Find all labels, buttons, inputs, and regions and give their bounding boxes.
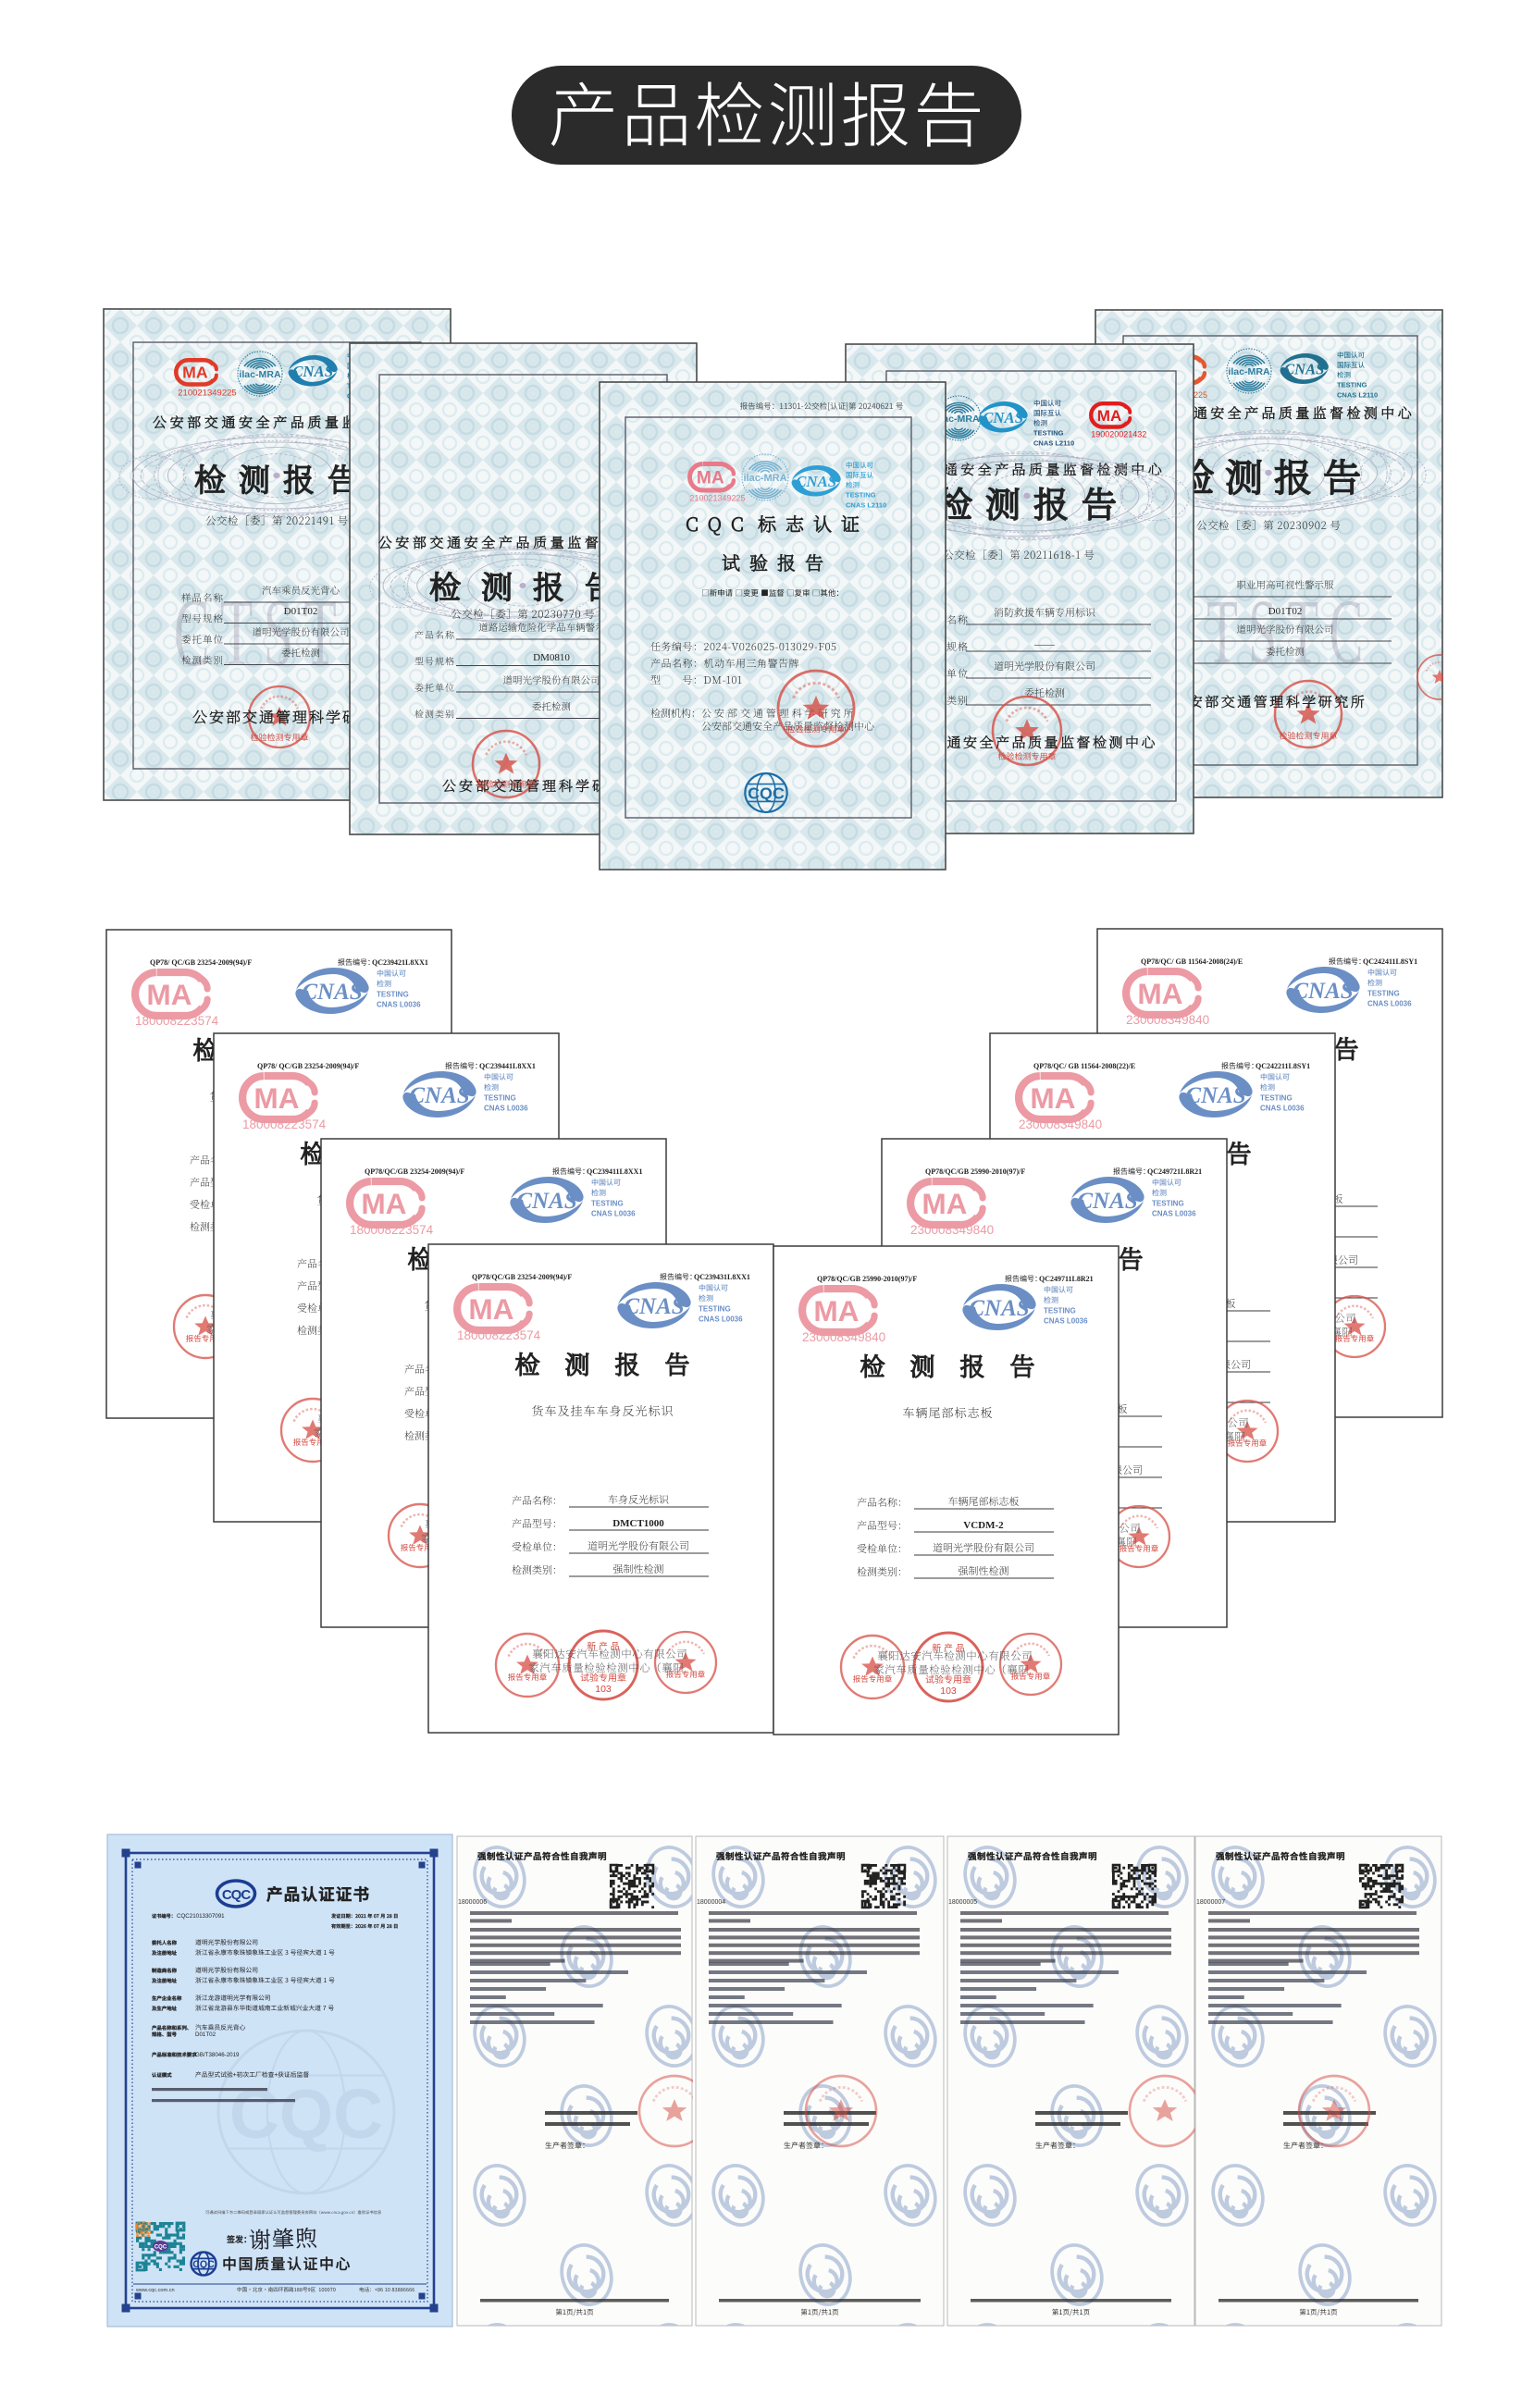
svg-text:MA: MA	[361, 1187, 406, 1220]
svg-text:CNAS: CNAS	[1293, 979, 1353, 1004]
svg-text:MA: MA	[697, 469, 724, 488]
svg-text:QP78/QC/ GB 11564-2008(24)/E: QP78/QC/ GB 11564-2008(24)/E	[1141, 957, 1243, 966]
svg-text:230008349840: 230008349840	[1019, 1118, 1102, 1131]
svg-text:D01T02: D01T02	[195, 2031, 216, 2038]
svg-text:www.cqc.com.cn: www.cqc.com.cn	[135, 2288, 175, 2293]
svg-text:103: 103	[940, 1686, 957, 1697]
svg-text:MA: MA	[468, 1292, 513, 1326]
svg-text:CNAS: CNAS	[302, 980, 362, 1005]
svg-text:QP78/QC/ GB 11564-2008(22)/E: QP78/QC/ GB 11564-2008(22)/E	[1033, 1062, 1135, 1070]
svg-text:ilac-MRA: ilac-MRA	[1228, 366, 1270, 377]
svg-text:QC249721L8R21: QC249721L8R21	[1147, 1167, 1202, 1176]
svg-text:CNAS L2110: CNAS L2110	[846, 500, 886, 509]
svg-text:210021349225: 210021349225	[689, 493, 745, 502]
svg-text:MA: MA	[922, 1187, 967, 1220]
svg-text:TESTING: TESTING	[1367, 989, 1400, 997]
svg-text:230008349840: 230008349840	[802, 1330, 885, 1344]
svg-text:QP78/ QC/GB 23254-2009(94)/F: QP78/ QC/GB 23254-2009(94)/F	[257, 1062, 359, 1070]
svg-text:CNAS: CNAS	[1185, 1083, 1245, 1108]
svg-text:CNAS L0036: CNAS L0036	[377, 1001, 421, 1009]
svg-text:18000006: 18000006	[458, 1899, 487, 1906]
svg-text:GB/T38046-2019: GB/T38046-2019	[195, 2052, 240, 2058]
svg-text:ilac-MRA: ilac-MRA	[239, 369, 281, 380]
svg-text:QP78/QC/GB 25990-2010(97)/F: QP78/QC/GB 25990-2010(97)/F	[817, 1275, 917, 1283]
svg-text:180008223574: 180008223574	[135, 1014, 219, 1028]
svg-text:QP78/QC/GB 23254-2009(94)/F: QP78/QC/GB 23254-2009(94)/F	[365, 1167, 464, 1176]
svg-text:CQC: CQC	[155, 2245, 167, 2251]
svg-text:QC249711L8R21: QC249711L8R21	[1039, 1275, 1094, 1283]
svg-text:TESTING: TESTING	[1044, 1306, 1076, 1315]
svg-text:MA: MA	[146, 978, 192, 1011]
svg-text:CNAS: CNAS	[409, 1083, 469, 1108]
svg-text:TESTING: TESTING	[1033, 429, 1064, 438]
svg-text:CQC21013307091: CQC21013307091	[177, 1913, 225, 1920]
svg-text:——: ——	[1033, 639, 1056, 650]
svg-text:ilac-MRA: ilac-MRA	[743, 473, 786, 484]
svg-text:18000005: 18000005	[948, 1899, 977, 1906]
svg-text:CNAS L2110: CNAS L2110	[1033, 438, 1074, 447]
svg-text:CNAS: CNAS	[624, 1294, 684, 1319]
svg-text:210021349225: 210021349225	[178, 388, 236, 398]
svg-text:CQC: CQC	[229, 2075, 383, 2153]
svg-text:180008223574: 180008223574	[350, 1223, 434, 1237]
svg-text:103: 103	[595, 1684, 612, 1695]
svg-text:QC239431L8XX1: QC239431L8XX1	[694, 1273, 750, 1281]
svg-text:QC239441L8XX1: QC239441L8XX1	[479, 1062, 536, 1070]
svg-text:CNAS: CNAS	[1077, 1189, 1137, 1214]
svg-text:DMCT1000: DMCT1000	[612, 1518, 664, 1529]
svg-text:CNAS L0036: CNAS L0036	[1367, 1000, 1412, 1008]
svg-text:TESTING: TESTING	[699, 1304, 731, 1313]
svg-text:180008223574: 180008223574	[242, 1118, 327, 1131]
svg-text:QC239411L8XX1: QC239411L8XX1	[587, 1167, 642, 1176]
svg-text:230008349840: 230008349840	[910, 1223, 994, 1237]
svg-text:CNAS L0036: CNAS L0036	[1260, 1105, 1305, 1113]
svg-text:CNAS: CNAS	[796, 473, 836, 490]
svg-text:CNAS: CNAS	[1284, 360, 1324, 377]
svg-text:CNAS L0036: CNAS L0036	[1152, 1210, 1196, 1218]
svg-text:QC242211L8SY1: QC242211L8SY1	[1256, 1062, 1310, 1070]
svg-text:QP78/QC/GB 25990-2010(97)/F: QP78/QC/GB 25990-2010(97)/F	[925, 1167, 1025, 1176]
svg-text:TESTING: TESTING	[1260, 1093, 1293, 1102]
svg-text:18000004: 18000004	[697, 1899, 725, 1906]
svg-text:TESTING: TESTING	[591, 1199, 624, 1207]
svg-text:CNAS L0036: CNAS L0036	[591, 1210, 636, 1218]
svg-text:CNAS L0036: CNAS L0036	[1044, 1317, 1088, 1326]
svg-text:D01T02: D01T02	[1268, 606, 1303, 617]
svg-text:CNAS L0036: CNAS L0036	[484, 1105, 528, 1113]
svg-text:MA: MA	[1097, 407, 1122, 425]
svg-text:CQC: CQC	[748, 784, 785, 803]
svg-text:CNAS L0036: CNAS L0036	[699, 1315, 743, 1324]
svg-text:CNAS: CNAS	[983, 409, 1023, 426]
svg-text:MA: MA	[813, 1294, 859, 1327]
svg-text:190020021432: 190020021432	[1091, 430, 1146, 439]
svg-text:DM0810: DM0810	[533, 652, 570, 663]
svg-text:CNAS L2110: CNAS L2110	[1337, 390, 1378, 399]
svg-text:QC239421L8XX1: QC239421L8XX1	[372, 958, 428, 967]
svg-text:CNAS: CNAS	[969, 1296, 1029, 1321]
svg-text:QP78/ QC/GB 23254-2009(94)/F: QP78/ QC/GB 23254-2009(94)/F	[150, 958, 252, 967]
svg-text:TESTING: TESTING	[484, 1093, 516, 1102]
svg-text:CNAS: CNAS	[292, 363, 333, 380]
svg-text:TESTING: TESTING	[846, 491, 876, 500]
svg-text:230008349840: 230008349840	[1126, 1013, 1209, 1027]
svg-text:MA: MA	[182, 364, 208, 382]
svg-text:VCDM-2: VCDM-2	[963, 1520, 1004, 1531]
svg-text:CNAS: CNAS	[516, 1189, 576, 1214]
svg-text:QC242411L8SY1: QC242411L8SY1	[1363, 957, 1417, 966]
svg-text:225: 225	[1194, 390, 1207, 400]
svg-text:TESTING: TESTING	[1337, 381, 1367, 389]
svg-text:TESTING: TESTING	[377, 990, 409, 998]
svg-text:CQC: CQC	[222, 1887, 252, 1903]
svg-text:18000007: 18000007	[1196, 1899, 1225, 1906]
svg-text:QP78/QC/GB 23254-2009(94)/F: QP78/QC/GB 23254-2009(94)/F	[472, 1273, 572, 1281]
svg-text:MA: MA	[1137, 977, 1182, 1010]
svg-text:180008223574: 180008223574	[457, 1328, 541, 1342]
svg-text:CQC: CQC	[192, 2259, 215, 2270]
svg-text:TESTING: TESTING	[1152, 1199, 1184, 1207]
svg-text:MA: MA	[1030, 1081, 1075, 1115]
svg-text:D01T02: D01T02	[284, 606, 318, 617]
svg-text:MA: MA	[254, 1081, 299, 1115]
